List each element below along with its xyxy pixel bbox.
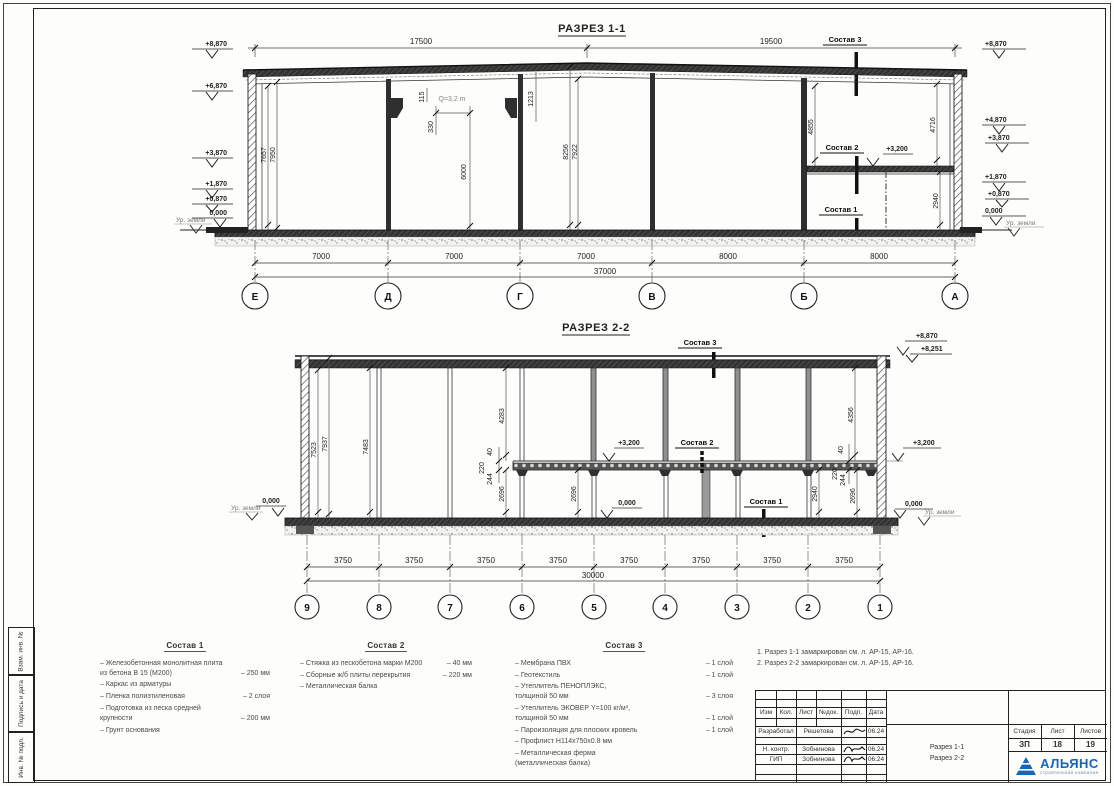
elev-left: +1,870 <box>205 181 227 188</box>
dim-span: 7000 <box>577 252 595 261</box>
stamp-sheets-label: Листов <box>1074 724 1107 738</box>
section1-right-elevations: +8,870 +4,870 +3,870 +1,870 +0,870 0,000… <box>982 41 1044 236</box>
legend-item: – Каркас из арматуры <box>100 680 270 690</box>
elev-right: +0,870 <box>988 191 1010 198</box>
elev-0000-right: 0,000 <box>905 501 923 508</box>
legend-item: – Утеплитель ПЕНОПЛЭКС, толщиной 50 мм– … <box>515 682 733 702</box>
dim-span: 3750 <box>835 556 853 565</box>
sostav1-label: Состав 1 <box>750 497 783 506</box>
column <box>735 368 740 461</box>
elev-right: +1,870 <box>985 174 1007 181</box>
dim-330: 330 <box>428 121 435 133</box>
stamp-sheet-value: 18 <box>1041 738 1074 751</box>
stamp-sheets-value: 19 <box>1074 738 1107 751</box>
elev-3200-s1: +3,200 <box>886 146 908 153</box>
dim-span: 3750 <box>405 556 423 565</box>
stamp-stage-value: ЗП <box>1008 738 1041 751</box>
column-lower <box>520 470 524 518</box>
dim-total: 30000 <box>582 571 605 580</box>
dim-40: 40 <box>838 446 845 454</box>
dim-4356: 4356 <box>848 407 855 423</box>
signature-icon <box>841 726 866 737</box>
sostav2-label: Состав 2 <box>826 143 859 152</box>
stamp-name: Решетова <box>796 726 841 737</box>
dim-span: 3750 <box>477 556 495 565</box>
legend-item: – Подготовка из песка средней крупности–… <box>100 704 270 724</box>
logo-triangle-icon <box>1016 757 1036 775</box>
wall-left <box>301 356 309 518</box>
column <box>591 368 596 461</box>
frame-strip-label: Подпись и дата <box>18 680 25 727</box>
legend-item: – Стяжка из пескобетона марки М200– 40 м… <box>300 659 472 669</box>
dim-4716: 4716 <box>930 117 937 133</box>
column <box>448 368 452 518</box>
legend-item: – Мембрана ПВХ– 1 слой <box>515 659 733 669</box>
dim-4283: 4283 <box>499 408 506 424</box>
legend-item: – Геотекстиль– 1 слой <box>515 671 733 681</box>
stamp-role: Н. контр. <box>756 744 796 754</box>
column-axis-g <box>518 74 523 232</box>
axis-label: 3 <box>734 603 740 614</box>
column-axis-d <box>386 79 391 232</box>
legend-item: – Пароизоляция для плоских кровель– 1 сл… <box>515 726 733 736</box>
dim-7657: 7657 <box>261 147 268 163</box>
dim-7950: 7950 <box>270 147 277 163</box>
dim-7937: 7937 <box>322 436 329 452</box>
legend-title: Состав 1 <box>164 641 205 652</box>
column <box>663 368 668 461</box>
column-lower <box>736 470 740 518</box>
elev-3200-mid: +3,200 <box>618 440 640 447</box>
legend-sostav-1: Состав 1 – Железобетонная монолитная пли… <box>100 640 270 737</box>
frame-strip-vzam: Взам. инв. № <box>8 627 35 676</box>
logo-name: АЛЬЯНС <box>1040 757 1099 770</box>
partition-lower <box>702 470 710 518</box>
wall-right <box>877 356 886 518</box>
note-line: 1. Разрез 1-1 замаркирован см. л. АР-15,… <box>757 648 1017 659</box>
dim-2940: 2940 <box>812 486 819 502</box>
stamp-col-izm: Изм <box>756 707 776 718</box>
ground-level-label: Ур. земли <box>176 217 206 224</box>
frame-strip-label: Инв. № подл. <box>18 737 25 778</box>
section1-left-elevations: +8,870 +6,870 +3,870 +1,870 +0,870 0,000… <box>174 41 233 233</box>
elev-top-parapet: +8,870 <box>916 333 938 340</box>
stamp-role: ГИП <box>756 754 796 764</box>
elev-top-roof: +8,251 <box>921 346 943 353</box>
column <box>520 368 524 461</box>
drawing-notes: 1. Разрез 1-1 замаркирован см. л. АР-15,… <box>757 648 1017 669</box>
column-lower <box>592 470 596 518</box>
dim-span: 3750 <box>620 556 638 565</box>
dim-220: 220 <box>832 468 839 480</box>
elev-right: 0,000 <box>985 208 1003 215</box>
dim-2696: 2696 <box>571 486 578 502</box>
section1-axis-bubbles <box>242 283 968 309</box>
signature-icon <box>841 744 866 754</box>
stamp-col-podp: Подп. <box>841 707 866 718</box>
axis-label: 8 <box>376 603 382 614</box>
axis-label: 7 <box>447 603 453 614</box>
axis-label: 5 <box>591 603 597 614</box>
section1-ground <box>180 227 1012 246</box>
elev-right: +8,870 <box>985 41 1007 48</box>
dim-span: 7000 <box>445 252 463 261</box>
note-line: 2. Разрез 2-2 замаркирован см. л. АР-15,… <box>757 659 1017 670</box>
company-logo: АЛЬЯНС строительная компания <box>1010 752 1105 780</box>
axis-label: Г <box>517 292 523 303</box>
dim-4855: 4855 <box>808 119 815 135</box>
dim-19500: 19500 <box>760 37 783 46</box>
ground-level-label: Ур. земли <box>1006 220 1036 227</box>
stamp-doc-title: Разрез 1-1 Разрез 2-2 <box>886 731 1008 776</box>
column <box>806 368 811 461</box>
dim-2696: 2696 <box>499 486 506 502</box>
legend-item: – Сборные ж/б плиты перекрытия– 220 мм <box>300 671 472 681</box>
stamp-sheet-label: Лист <box>1041 724 1074 738</box>
dim-2940: 2940 <box>933 193 940 209</box>
ground-level-label: Ур. земли <box>925 509 955 516</box>
dim-220: 220 <box>479 462 486 474</box>
stamp-date: 06.24 <box>866 754 886 764</box>
section1-bottom-dims <box>252 240 958 283</box>
stamp-stage-label: Стадия <box>1008 724 1041 738</box>
elev-left: +3,870 <box>205 150 227 157</box>
elev-3200-right: +3,200 <box>913 440 935 447</box>
frame-strip-label: Взам. инв. № <box>18 631 25 671</box>
dim-7483: 7483 <box>363 439 370 455</box>
axis-label: Д <box>384 292 391 303</box>
column-axis-b <box>801 78 807 232</box>
dim-span: 7000 <box>312 252 330 261</box>
drawing-sheet: Взам. инв. № Подпись и дата Инв. № подл.… <box>0 0 1114 786</box>
sostav1-label: Состав 1 <box>825 205 858 214</box>
elev-0000-mid: 0,000 <box>618 500 636 507</box>
column-axis-v <box>650 73 655 232</box>
axis-label: 9 <box>304 603 310 614</box>
stamp-col-kol: Кол. <box>776 707 796 718</box>
stamp-col-list: Лист <box>796 707 816 718</box>
signature-icon <box>841 754 866 764</box>
axis-label: 4 <box>662 603 668 614</box>
stamp-name: Зобнинова <box>796 754 841 764</box>
column <box>377 368 381 518</box>
section2-title: РАЗРЕЗ 2-2 <box>562 322 630 334</box>
legend-item: – Железобетонная монолитная плита из бет… <box>100 659 270 679</box>
dim-span: 8000 <box>719 252 737 261</box>
axis-label: А <box>951 292 958 303</box>
legend-item: – Грунт основания <box>100 726 270 736</box>
section2-roof <box>295 356 890 368</box>
sostav3-label: Состав 3 <box>684 338 717 347</box>
wall-right <box>954 74 962 232</box>
legend-title-wrap: Состав 2 <box>300 640 472 652</box>
crane-console-right <box>505 98 517 118</box>
dim-244: 244 <box>840 474 847 486</box>
dim-span: 3750 <box>692 556 710 565</box>
dim-244: 244 <box>487 473 494 485</box>
axis-label: 1 <box>877 603 883 614</box>
section2-bottom-dims <box>304 535 883 595</box>
section-2-2: РАЗРЕЗ 2-2 Состав 3 +8,870 +8,251 <box>229 322 961 619</box>
column-lower <box>664 470 668 518</box>
legend-title: Состав 2 <box>365 641 406 652</box>
frame-strip-inv: Инв. № подл. <box>8 731 35 783</box>
frame-strip-podpis: Подпись и дата <box>8 674 35 733</box>
crane-capacity-label: Q=3,2 m <box>438 96 465 103</box>
legend-sostav-2: Состав 2 – Стяжка из пескобетона марки М… <box>300 640 472 694</box>
elev-left: +0,870 <box>205 196 227 203</box>
logo-subtitle: строительная компания <box>1040 770 1099 775</box>
dim-total: 37000 <box>594 267 617 276</box>
sostav2-label: Состав 2 <box>681 438 714 447</box>
stamp-role: Разработал <box>756 726 796 737</box>
section2-structure <box>301 356 886 518</box>
dim-7922: 7922 <box>572 144 579 160</box>
ground-level-label: Ур. земли <box>231 505 261 512</box>
legend-title-wrap: Состав 3 <box>515 640 733 652</box>
legend-item: – Металлическая балка <box>300 682 472 692</box>
sostav3-label: Состав 3 <box>829 35 862 44</box>
dim-8256: 8256 <box>563 144 570 160</box>
dim-2696: 2696 <box>850 488 857 504</box>
axis-label: Е <box>252 292 259 303</box>
stamp-date: 06.24 <box>866 726 886 737</box>
legend-item: – Утеплитель ЭКОВЕР Y=100 кг/м³, толщино… <box>515 704 733 724</box>
section1-mezzanine <box>807 166 954 232</box>
dim-7523: 7523 <box>311 442 318 458</box>
sostav2-marker-bar <box>855 156 859 194</box>
axis-label: 2 <box>805 603 811 614</box>
section2-ground <box>285 518 898 535</box>
dim-6000: 6000 <box>461 164 468 180</box>
axis-label: 6 <box>519 603 525 614</box>
legend-title: Состав 3 <box>603 641 644 652</box>
section2-floor <box>513 461 877 476</box>
crane-console-left <box>391 98 403 118</box>
elev-right: +3,870 <box>988 135 1010 142</box>
stamp-col-ndok: №док. <box>816 707 841 718</box>
stamp-date: 06.24 <box>866 744 886 754</box>
dim-17500: 17500 <box>410 37 433 46</box>
axis-label: Б <box>800 292 807 303</box>
elev-0000-left: 0,000 <box>262 498 280 505</box>
stamp-col-data: Дата <box>866 707 886 718</box>
dim-40: 40 <box>487 448 494 456</box>
dim-115: 115 <box>419 91 426 102</box>
elev-left: 0,000 <box>209 210 227 217</box>
section1-title: РАЗРЕЗ 1-1 <box>558 23 626 35</box>
section-1-1: РАЗРЕЗ 1-1 17500 19500 Состав 3 <box>174 23 1044 309</box>
dim-span: 8000 <box>870 252 888 261</box>
column-lower <box>807 470 811 518</box>
dim-span: 3750 <box>334 556 352 565</box>
legend-title-wrap: Состав 1 <box>100 640 270 652</box>
title-block: Изм Кол. Лист №док. Подп. Дата Разработа… <box>755 690 1106 781</box>
legend-item: – Профлист Н114х750х0.8 мм <box>515 737 733 747</box>
dim-span: 3750 <box>763 556 781 565</box>
legend-item: – Пленка полиэтиленовая– 2 слоя <box>100 692 270 702</box>
dim-1213: 1213 <box>528 91 535 107</box>
sections-drawing: РАЗРЕЗ 1-1 17500 19500 Состав 3 <box>0 0 1114 625</box>
section2-vert-dims <box>315 355 860 520</box>
legend-sostav-3: Состав 3 – Мембрана ПВХ– 1 слой – Геотек… <box>515 640 733 771</box>
legend-item: – Металлическая ферма (металлическая бал… <box>515 749 733 769</box>
wall-left <box>248 74 256 232</box>
elev-left: +6,870 <box>205 83 227 90</box>
axis-label: В <box>648 292 655 303</box>
section1-roof <box>243 63 967 84</box>
elev-right: +4,870 <box>985 117 1007 124</box>
stamp-name: Зобнинова <box>796 744 841 754</box>
dim-span: 3750 <box>549 556 567 565</box>
elev-left: +8,870 <box>205 41 227 48</box>
